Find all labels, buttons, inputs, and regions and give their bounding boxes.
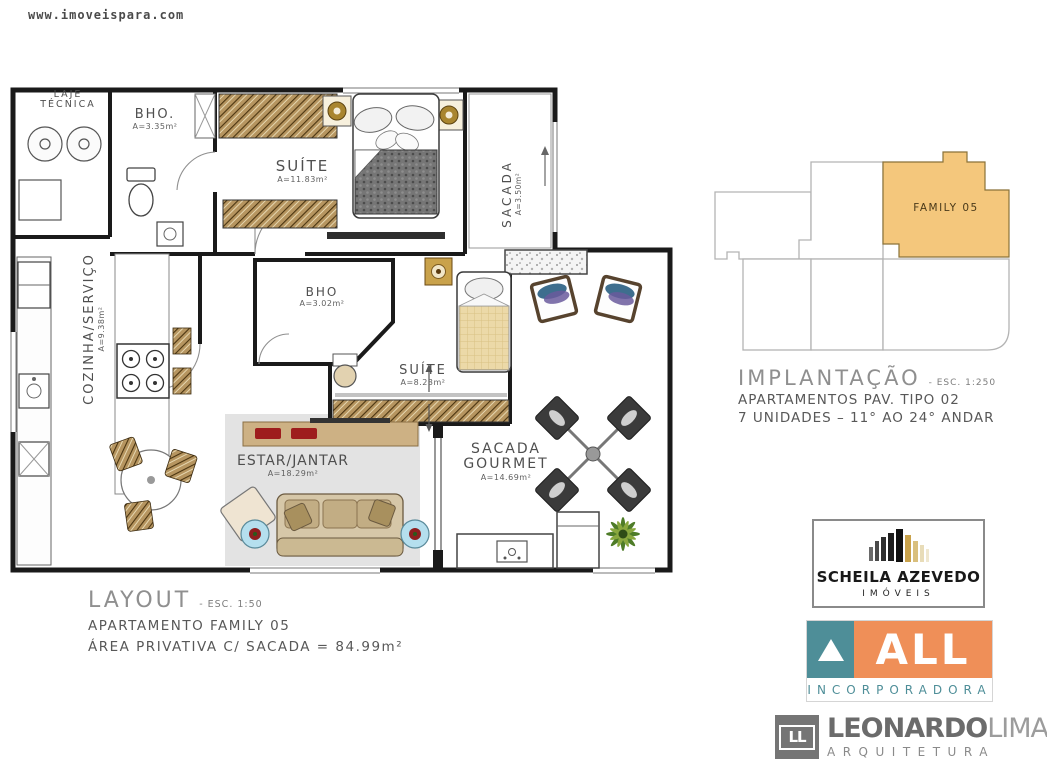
glass-door-divider (433, 424, 443, 570)
layout-title: LAYOUT (88, 588, 191, 613)
toilet-icon (127, 168, 155, 216)
wardrobe (223, 200, 337, 228)
sink-icon (157, 222, 183, 246)
concrete-ledge (505, 250, 587, 274)
plant-icon (606, 517, 640, 551)
leonardo-name-bold: LEONARDO (827, 713, 987, 744)
scheila-subtitle: IMÓVEIS (862, 589, 935, 599)
kitchen-fixtures (17, 254, 198, 565)
sofa (277, 494, 403, 556)
suite1-furniture (219, 94, 463, 239)
laundry-tanks (19, 127, 101, 220)
lounge-chair (595, 276, 641, 322)
all-teal-box (807, 621, 854, 678)
nightstand (323, 96, 351, 126)
sacada-top (469, 94, 551, 248)
direction-arrow (541, 146, 549, 155)
family-05-unit-label: FAMILY 05 (913, 202, 978, 214)
leonardo-lima-logo: LL LEONARDOLIMA ARQUITETURA (775, 712, 1043, 762)
floor-plan-panel: LAJE TÉCNICA BHO. A=3.35m² SUÍTE A=11.83… (5, 82, 685, 582)
all-subtitle: INCORPORADORA (807, 683, 991, 697)
implantation-caption: IMPLANTAÇÃO- ESC. 1:250 APARTAMENTOS PAV… (738, 366, 996, 426)
bed-runner (327, 232, 445, 239)
implantation-scale: - ESC. 1:250 (929, 378, 996, 388)
tv-icon (310, 418, 390, 423)
implantation-line2: 7 UNIDADES – 11° AO 24° ANDAR (738, 410, 996, 426)
bathroom1-fixtures (127, 94, 215, 246)
bathroom2-walls (255, 260, 393, 364)
all-incorporadora-logo: ALL INCORPORADORA (806, 620, 993, 702)
wardrobe (219, 94, 337, 138)
building-skyline-icon (867, 529, 931, 565)
leonardo-name-light: LIMA (987, 713, 1047, 744)
layout-scale: - ESC. 1:50 (199, 599, 263, 610)
floorplan-marketing-page: { "page": { "watermark": "www.imoveispar… (0, 0, 1047, 762)
scheila-azevedo-logo: SCHEILA AZEVEDO IMÓVEIS (812, 519, 985, 608)
sideboard (243, 418, 418, 446)
balcony-counter (457, 512, 599, 568)
implantation-panel: FAMILY 05 (703, 132, 1033, 364)
layout-caption: LAYOUT- ESC. 1:50 APARTAMENTO FAMILY 05 … (88, 588, 403, 655)
side-table (241, 520, 269, 548)
desk-chair (333, 354, 357, 387)
implantation-drawing: FAMILY 05 (703, 132, 1023, 362)
layout-line2: ÁREA PRIVATIVA C/ SACADA = 84.99m² (88, 639, 403, 655)
all-orange-box: ALL (854, 621, 992, 678)
implantation-title: IMPLANTAÇÃO (738, 366, 921, 390)
website-watermark: www.imoveispara.com (28, 8, 184, 22)
outdoor-dining-set (534, 395, 651, 512)
stove-icon (117, 344, 169, 398)
kitchen-sink-icon (19, 374, 49, 408)
layout-line1: APARTAMENTO FAMILY 05 (88, 618, 403, 634)
floor-plan-drawing (5, 82, 685, 582)
decor-rug (425, 258, 452, 285)
ll-monogram-icon: LL (775, 715, 819, 759)
leonardo-subtitle: ARQUITETURA (827, 745, 1047, 759)
implantation-line1: APARTAMENTOS PAV. TIPO 02 (738, 392, 996, 408)
scheila-name: SCHEILA AZEVEDO (817, 568, 981, 586)
side-table (401, 520, 429, 548)
lounge-chair (531, 276, 577, 322)
triangle-icon (818, 639, 844, 661)
double-bed (352, 94, 439, 218)
single-bed (457, 272, 511, 372)
all-name: ALL (875, 629, 970, 671)
